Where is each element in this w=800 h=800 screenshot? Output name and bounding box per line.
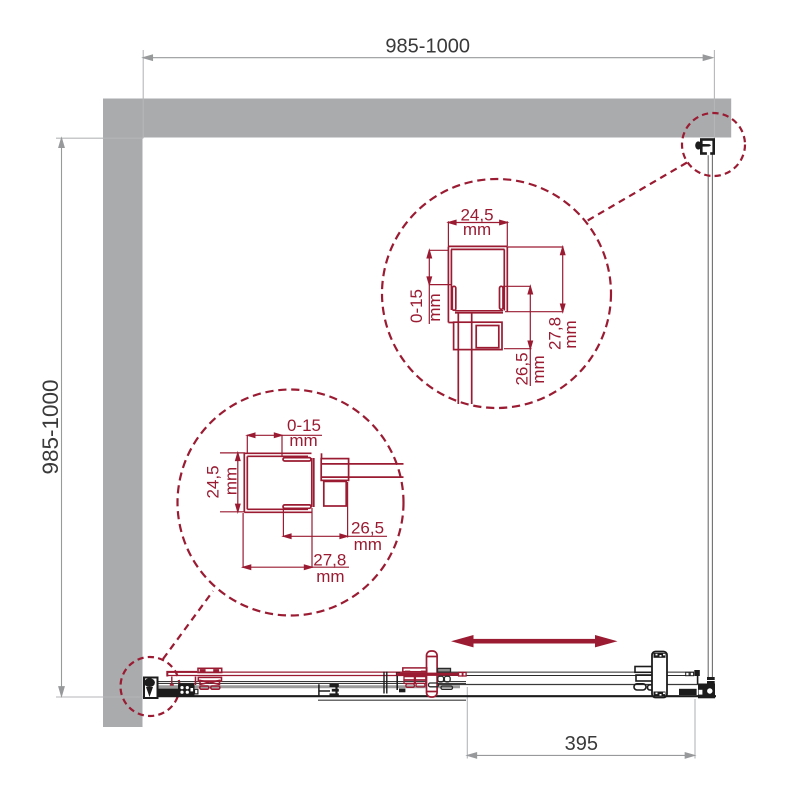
svg-text:985-1000: 985-1000 <box>38 379 63 474</box>
svg-text:395: 395 <box>565 733 598 755</box>
svg-text:mm: mm <box>425 293 444 321</box>
svg-text:mm: mm <box>463 220 491 239</box>
svg-text:mm: mm <box>561 320 580 348</box>
svg-text:mm: mm <box>354 535 382 554</box>
svg-text:mm: mm <box>289 431 317 450</box>
svg-text:24,5: 24,5 <box>204 465 223 498</box>
svg-text:mm: mm <box>316 567 344 586</box>
svg-text:mm: mm <box>221 467 240 495</box>
svg-text:mm: mm <box>529 355 548 383</box>
svg-text:0-15: 0-15 <box>407 289 426 323</box>
svg-text:985-1000: 985-1000 <box>385 36 470 58</box>
